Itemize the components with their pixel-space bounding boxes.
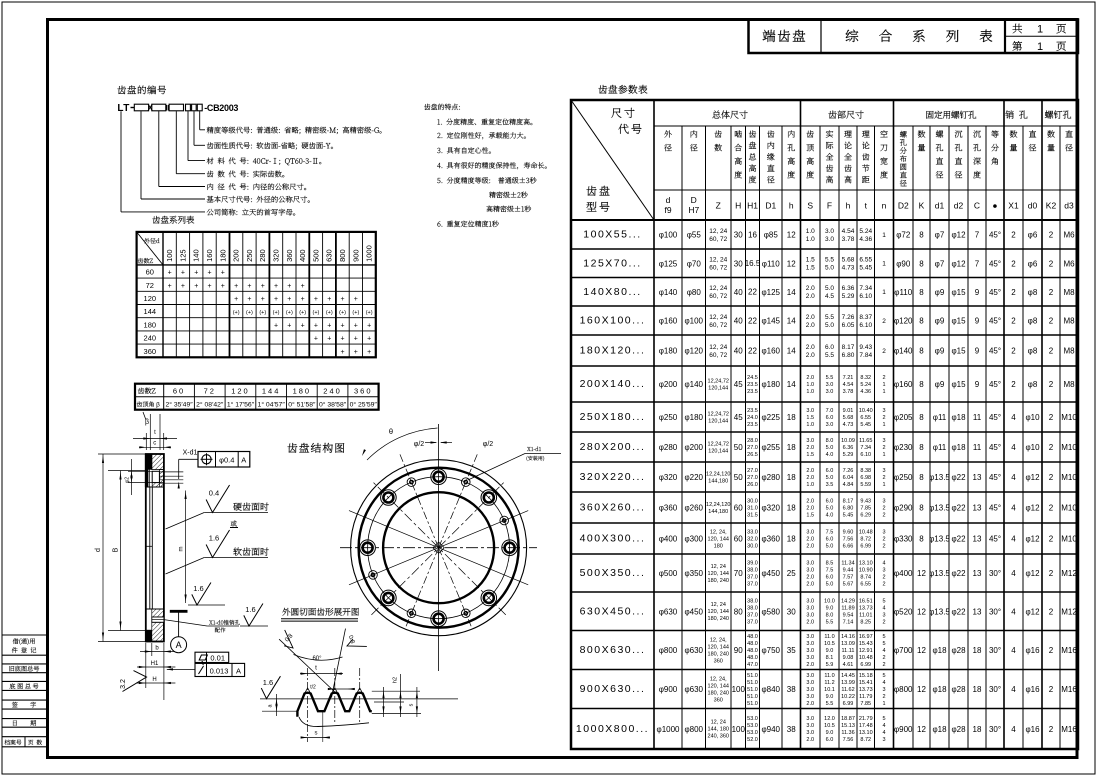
svg-text:(+): (+)	[352, 310, 359, 316]
svg-text:M12: M12	[1061, 607, 1077, 616]
svg-text:2: 2	[1049, 607, 1054, 616]
svg-text:360: 360	[354, 386, 373, 395]
svg-text:12: 12	[787, 231, 796, 240]
svg-text:5: 5	[882, 716, 885, 722]
svg-text:φ180: φ180	[684, 413, 703, 422]
svg-text:3.0: 3.0	[806, 408, 814, 414]
svg-text:φ10: φ10	[1025, 413, 1040, 422]
svg-text:30: 30	[734, 259, 743, 268]
svg-text:10.5: 10.5	[824, 723, 835, 729]
svg-text:3: 3	[882, 613, 885, 619]
svg-text:5.59: 5.59	[860, 482, 871, 488]
svg-text:12,24,120: 12,24,120	[706, 471, 730, 477]
svg-text:39.0: 39.0	[747, 560, 758, 566]
svg-text:s: s	[315, 731, 318, 737]
svg-text:3.0: 3.0	[806, 730, 814, 736]
svg-text:33.0: 33.0	[747, 529, 758, 535]
svg-text:3.0: 3.0	[806, 648, 814, 654]
svg-text:2.0: 2.0	[806, 581, 814, 587]
svg-text:180X120...: 180X120...	[580, 345, 646, 357]
svg-text:7.21: 7.21	[843, 375, 854, 381]
svg-text:φ8: φ8	[1028, 347, 1038, 356]
svg-text:3: 3	[882, 438, 885, 444]
svg-text:2: 2	[1049, 685, 1054, 694]
svg-text:φ1000: φ1000	[657, 725, 681, 734]
svg-text:11.65: 11.65	[859, 438, 872, 444]
svg-text:3.5: 3.5	[826, 482, 834, 488]
svg-text:125: 125	[178, 249, 187, 262]
svg-text:φ180: φ180	[761, 380, 780, 389]
svg-text:5.45: 5.45	[860, 422, 871, 428]
svg-text:φ22: φ22	[951, 569, 966, 578]
svg-text:+: +	[234, 283, 238, 290]
svg-text:4: 4	[882, 723, 885, 729]
svg-text:37.0: 37.0	[747, 574, 758, 580]
svg-text:4: 4	[1011, 413, 1016, 422]
svg-text:4: 4	[1011, 473, 1016, 482]
svg-text:1.0: 1.0	[806, 228, 815, 235]
svg-text:M10: M10	[1061, 443, 1077, 452]
svg-text:8: 8	[919, 288, 924, 297]
svg-text:11.0: 11.0	[824, 673, 834, 679]
svg-text:7.5: 7.5	[826, 529, 834, 535]
svg-text:11: 11	[973, 413, 982, 422]
svg-text:5.29: 5.29	[842, 293, 855, 300]
svg-text:7.14: 7.14	[843, 620, 854, 626]
svg-text:(+): (+)	[299, 310, 306, 316]
svg-text:9: 9	[975, 288, 980, 297]
svg-text:φ22: φ22	[951, 607, 966, 616]
svg-text:360X260...: 360X260...	[580, 502, 646, 514]
svg-text:φ/2: φ/2	[414, 441, 424, 448]
svg-text:2: 2	[1049, 231, 1054, 240]
svg-text:4: 4	[1011, 443, 1016, 452]
svg-text:t/2: t/2	[310, 685, 316, 691]
svg-text:φ160: φ160	[894, 380, 913, 389]
svg-text:180, 240: 180, 240	[708, 690, 729, 696]
svg-text:φ900: φ900	[894, 725, 913, 734]
svg-text:4.73: 4.73	[842, 265, 855, 272]
svg-text:7.84: 7.84	[859, 352, 872, 359]
svg-text:3.0: 3.0	[806, 560, 814, 566]
svg-text:400: 400	[298, 249, 307, 262]
svg-text:4: 4	[882, 730, 885, 736]
svg-text:φ8: φ8	[1028, 380, 1038, 389]
svg-text:100: 100	[165, 249, 174, 262]
svg-text:120, 144: 120, 144	[708, 644, 729, 650]
svg-text:H7: H7	[688, 205, 699, 215]
svg-text:144, 180: 144, 180	[708, 727, 729, 733]
svg-text:48.0: 48.0	[747, 634, 758, 640]
svg-text:5.5: 5.5	[826, 701, 834, 707]
svg-text:+: +	[168, 283, 172, 290]
svg-text:M16: M16	[1061, 685, 1077, 694]
svg-text:10.5: 10.5	[824, 641, 835, 647]
svg-text:8.25: 8.25	[860, 620, 871, 626]
svg-text:12, 24: 12, 24	[709, 285, 727, 292]
svg-text:1.6: 1.6	[263, 678, 273, 687]
svg-text:4.73: 4.73	[843, 422, 854, 428]
svg-text:+: +	[301, 296, 305, 303]
svg-text:φ7: φ7	[935, 231, 945, 240]
svg-text:60, 72: 60, 72	[709, 236, 727, 243]
svg-text:D1: D1	[765, 201, 776, 211]
svg-text:13.09: 13.09	[841, 641, 855, 647]
svg-text:10.0: 10.0	[824, 599, 835, 605]
svg-text:120, 144: 120, 144	[708, 683, 729, 689]
svg-text:9.60: 9.60	[843, 529, 854, 535]
svg-text:4.0: 4.0	[826, 512, 834, 518]
svg-text:23.5: 23.5	[747, 408, 758, 414]
svg-text:144: 144	[144, 307, 157, 316]
svg-text:12: 12	[917, 725, 926, 734]
svg-text:φ330: φ330	[894, 535, 913, 544]
svg-text:3.0: 3.0	[806, 606, 814, 612]
svg-text:40: 40	[734, 288, 743, 297]
svg-text:2: 2	[882, 662, 885, 668]
svg-text:3.0: 3.0	[806, 599, 814, 605]
svg-text:D2: D2	[898, 201, 909, 211]
svg-text:+: +	[287, 283, 291, 290]
svg-text:6.04: 6.04	[843, 475, 854, 481]
svg-text:320X220...: 320X220...	[580, 471, 646, 483]
svg-text:φ13.5: φ13.5	[929, 569, 950, 578]
svg-text:18: 18	[787, 535, 796, 544]
svg-text:5.5: 5.5	[826, 375, 834, 381]
svg-text:6.36: 6.36	[842, 285, 855, 292]
svg-text:φ360: φ360	[659, 504, 678, 513]
svg-text:8.0: 8.0	[826, 613, 834, 619]
svg-text:0° 25′59″: 0° 25′59″	[350, 400, 378, 408]
svg-text:0.4: 0.4	[209, 488, 219, 497]
svg-text:15.13: 15.13	[841, 723, 855, 729]
svg-text:+: +	[274, 322, 278, 329]
svg-text:23.5: 23.5	[747, 389, 758, 395]
svg-text:d1: d1	[935, 201, 945, 211]
svg-text:8.17: 8.17	[842, 344, 855, 351]
svg-text:10.22: 10.22	[841, 694, 855, 700]
svg-text:7.57: 7.57	[843, 574, 854, 580]
svg-text:0.01: 0.01	[210, 653, 225, 662]
svg-text:40: 40	[734, 317, 743, 326]
svg-text:1: 1	[882, 422, 885, 428]
svg-text:6.98: 6.98	[860, 475, 871, 481]
svg-text:φ15: φ15	[951, 317, 966, 326]
svg-text:50: 50	[734, 473, 743, 482]
svg-text:60, 72: 60, 72	[709, 322, 727, 329]
svg-text:+: +	[314, 296, 318, 303]
svg-text:13.99: 13.99	[841, 680, 855, 686]
svg-text:φ400: φ400	[659, 535, 678, 544]
svg-text:+: +	[301, 283, 305, 290]
svg-text:250X180...: 250X180...	[580, 411, 646, 423]
svg-text:3: 3	[882, 498, 885, 504]
svg-text:630: 630	[325, 249, 334, 262]
svg-text:11.0: 11.0	[824, 634, 834, 640]
svg-text:1.5: 1.5	[806, 265, 815, 272]
svg-text:4: 4	[1011, 569, 1016, 578]
svg-text:120,144: 120,144	[708, 448, 728, 454]
svg-text:180, 240: 180, 240	[708, 616, 729, 622]
svg-text:3.0: 3.0	[806, 438, 814, 444]
svg-text:7.56: 7.56	[843, 737, 854, 743]
svg-text:3.0: 3.0	[806, 567, 814, 573]
svg-text:φ85: φ85	[764, 231, 779, 240]
svg-text:f9: f9	[664, 205, 671, 215]
svg-text:26.0: 26.0	[747, 482, 758, 488]
svg-text:φ18: φ18	[951, 413, 966, 422]
svg-text:φ10: φ10	[1025, 443, 1040, 452]
svg-text:6.55: 6.55	[860, 415, 871, 421]
svg-text:50: 50	[734, 443, 743, 452]
svg-text:5.0: 5.0	[826, 581, 834, 587]
svg-text:51.0: 51.0	[747, 687, 758, 693]
svg-text:8.38: 8.38	[860, 468, 871, 474]
svg-text:M8: M8	[1063, 317, 1075, 326]
svg-text:φ7: φ7	[935, 259, 945, 268]
svg-text:2: 2	[882, 620, 885, 626]
svg-text:8: 8	[919, 535, 924, 544]
svg-text:8: 8	[919, 504, 924, 513]
svg-text:45°: 45°	[989, 231, 1001, 240]
svg-text:12,24,72: 12,24,72	[708, 411, 729, 417]
svg-text:1.6: 1.6	[245, 605, 255, 614]
svg-text:2.0: 2.0	[806, 536, 814, 542]
svg-text:10.1: 10.1	[824, 687, 835, 693]
svg-text:12: 12	[917, 607, 926, 616]
svg-text:φ16: φ16	[1025, 725, 1040, 734]
svg-text:φ22: φ22	[951, 473, 966, 482]
svg-text:23.5: 23.5	[747, 422, 758, 428]
svg-text:1.5: 1.5	[806, 257, 815, 264]
svg-text:+: +	[301, 322, 305, 329]
svg-text:φ18: φ18	[932, 725, 947, 734]
svg-text:6.55: 6.55	[859, 257, 872, 264]
svg-text:A: A	[241, 456, 246, 465]
svg-text:β: β	[145, 419, 149, 426]
svg-text:K2: K2	[1046, 201, 1057, 211]
svg-text:6.99: 6.99	[860, 543, 871, 549]
svg-text:φ13.5: φ13.5	[929, 535, 950, 544]
svg-text:1.6: 1.6	[193, 584, 203, 593]
svg-text:-CB2003: -CB2003	[204, 103, 238, 113]
svg-text:9.0: 9.0	[826, 648, 834, 654]
svg-text:6.99: 6.99	[860, 662, 871, 668]
svg-text:10.09: 10.09	[841, 438, 855, 444]
svg-text:13: 13	[973, 569, 982, 578]
svg-text:φ280: φ280	[659, 443, 678, 452]
svg-text:6.99: 6.99	[843, 701, 854, 707]
svg-text:K: K	[919, 201, 925, 211]
svg-text:φ12: φ12	[1025, 504, 1040, 513]
svg-text:9.01: 9.01	[843, 408, 854, 414]
svg-text:φ700: φ700	[894, 646, 913, 655]
svg-text:5.67: 5.67	[843, 581, 854, 587]
svg-text:60°: 60°	[312, 656, 322, 662]
svg-text:3: 3	[882, 737, 885, 743]
svg-text:8: 8	[919, 473, 924, 482]
svg-text:12, 24: 12, 24	[711, 602, 726, 608]
svg-text:φ80: φ80	[687, 288, 702, 297]
svg-text:60: 60	[734, 504, 743, 513]
svg-text:+: +	[247, 296, 251, 303]
svg-text:51.0: 51.0	[747, 701, 758, 707]
svg-text:2: 2	[1049, 504, 1054, 513]
svg-text:2: 2	[1049, 443, 1054, 452]
svg-text:d: d	[95, 548, 102, 552]
svg-text:φ940: φ940	[761, 725, 780, 734]
svg-text:5.0: 5.0	[826, 505, 834, 511]
svg-text:900X630...: 900X630...	[580, 683, 646, 695]
svg-text:3.0: 3.0	[806, 687, 814, 693]
svg-text:2.0: 2.0	[806, 344, 815, 351]
svg-text:1.6: 1.6	[209, 533, 219, 542]
svg-text:22: 22	[748, 346, 757, 355]
svg-text:22: 22	[748, 288, 757, 297]
svg-text:φ110: φ110	[894, 288, 912, 297]
svg-text:4.36: 4.36	[860, 389, 871, 395]
svg-text:38: 38	[787, 685, 796, 694]
svg-text:6.10: 6.10	[860, 452, 871, 458]
svg-text:4: 4	[1011, 504, 1016, 513]
svg-text:φ/2: φ/2	[483, 441, 493, 448]
svg-text:2: 2	[1049, 413, 1054, 422]
svg-text:1: 1	[882, 289, 886, 296]
svg-text:2: 2	[1049, 535, 1054, 544]
svg-text:φ100: φ100	[684, 317, 703, 326]
svg-text:26.5: 26.5	[747, 452, 758, 458]
svg-text:8.0: 8.0	[826, 438, 834, 444]
svg-text:d2: d2	[954, 201, 964, 211]
svg-text:120, 144: 120, 144	[708, 571, 729, 577]
svg-text:3: 3	[882, 468, 885, 474]
svg-text:144,180: 144,180	[708, 478, 728, 484]
svg-text:13: 13	[973, 535, 982, 544]
svg-text:+: +	[181, 270, 185, 277]
svg-text:6.66: 6.66	[843, 543, 854, 549]
svg-text:φ520: φ520	[894, 607, 913, 616]
svg-text:φ260: φ260	[684, 504, 703, 513]
svg-text:18: 18	[787, 443, 796, 452]
svg-text:8.72: 8.72	[860, 536, 871, 542]
svg-text:1.5: 1.5	[806, 512, 814, 518]
svg-text:100X55...: 100X55...	[583, 229, 641, 241]
svg-text:2.0: 2.0	[806, 543, 814, 549]
svg-text:φ580: φ580	[761, 607, 780, 616]
svg-text:250: 250	[245, 249, 254, 262]
svg-text:18: 18	[973, 646, 982, 655]
svg-text:2.0: 2.0	[806, 352, 815, 359]
svg-text:3.0: 3.0	[826, 382, 834, 388]
svg-text:D: D	[691, 195, 697, 205]
svg-text:M16: M16	[1061, 646, 1077, 655]
svg-text:φ280: φ280	[761, 473, 780, 482]
svg-text:2: 2	[1049, 569, 1054, 578]
svg-text:2.0: 2.0	[806, 505, 814, 511]
svg-text:240, 360: 240, 360	[708, 734, 729, 740]
svg-text:6.0: 6.0	[826, 574, 834, 580]
svg-text:180, 240: 180, 240	[708, 651, 729, 657]
svg-text:X1: X1	[1008, 201, 1019, 211]
svg-text:φ13.5: φ13.5	[929, 607, 950, 616]
svg-text:3: 3	[882, 529, 885, 535]
svg-text:280: 280	[258, 249, 267, 262]
svg-text:0.013: 0.013	[210, 667, 229, 676]
svg-text:45°: 45°	[989, 317, 1001, 326]
svg-text:120, 144: 120, 144	[708, 609, 729, 615]
svg-text:(+): (+)	[326, 310, 333, 316]
svg-text:φ205: φ205	[894, 413, 913, 422]
svg-text:3.0: 3.0	[806, 613, 814, 619]
svg-text:11.36: 11.36	[841, 730, 854, 736]
svg-text:+: +	[247, 283, 251, 290]
svg-text:60, 72: 60, 72	[709, 352, 727, 359]
svg-text:12,24,72: 12,24,72	[708, 441, 729, 447]
svg-text:6.29: 6.29	[860, 512, 871, 518]
svg-text:8.72: 8.72	[860, 737, 871, 743]
svg-text:15.18: 15.18	[859, 673, 873, 679]
svg-text:5.24: 5.24	[860, 382, 871, 388]
svg-text:φ12: φ12	[1025, 473, 1040, 482]
svg-text:4.54: 4.54	[843, 382, 854, 388]
svg-text:12, 24: 12, 24	[709, 314, 727, 321]
svg-text:3: 3	[882, 408, 885, 414]
svg-text:5.45: 5.45	[843, 512, 854, 518]
svg-text:+: +	[194, 270, 198, 277]
svg-text:φ630: φ630	[659, 607, 678, 616]
svg-text:h2: h2	[393, 677, 399, 683]
svg-text:M10: M10	[1061, 413, 1077, 422]
svg-text:φ12: φ12	[951, 259, 966, 268]
svg-text:+: +	[194, 283, 198, 290]
svg-text:1: 1	[1037, 24, 1043, 36]
svg-text:2: 2	[1011, 259, 1016, 268]
svg-text:14: 14	[787, 288, 796, 297]
svg-text:12, 24: 12, 24	[709, 257, 727, 264]
svg-text:φ140: φ140	[894, 347, 913, 356]
svg-text:7.34: 7.34	[859, 285, 872, 292]
svg-text:φ140: φ140	[659, 288, 678, 297]
svg-text:φ450: φ450	[684, 607, 703, 616]
svg-text:6.0: 6.0	[826, 468, 834, 474]
svg-text:18: 18	[787, 504, 796, 513]
svg-text:45°: 45°	[989, 504, 1001, 513]
svg-text:6.0: 6.0	[826, 415, 834, 421]
svg-text:φ8: φ8	[1028, 317, 1038, 326]
svg-text:6.55: 6.55	[860, 581, 871, 587]
svg-text:38.0: 38.0	[747, 599, 758, 605]
svg-text:φ160: φ160	[761, 347, 780, 356]
svg-text:800X630...: 800X630...	[580, 644, 646, 656]
svg-text:31.5: 31.5	[747, 512, 758, 518]
svg-text:+: +	[221, 270, 225, 277]
svg-text:1000X800...: 1000X800...	[576, 723, 649, 735]
svg-text:4: 4	[1011, 646, 1016, 655]
svg-text:φ16: φ16	[1025, 685, 1040, 694]
svg-text:72: 72	[146, 281, 154, 290]
svg-text:240: 240	[144, 334, 157, 343]
svg-text:+: +	[354, 296, 358, 303]
svg-text:5.0: 5.0	[826, 543, 834, 549]
svg-text:S: S	[807, 201, 813, 211]
svg-text:m: m	[179, 547, 185, 552]
svg-text:27.0: 27.0	[747, 475, 758, 481]
svg-text:6.0: 6.0	[825, 344, 834, 351]
svg-text:d: d	[666, 195, 671, 205]
svg-text:8.1: 8.1	[826, 655, 834, 661]
svg-text:M8: M8	[1063, 380, 1075, 389]
svg-text:360: 360	[144, 347, 157, 356]
